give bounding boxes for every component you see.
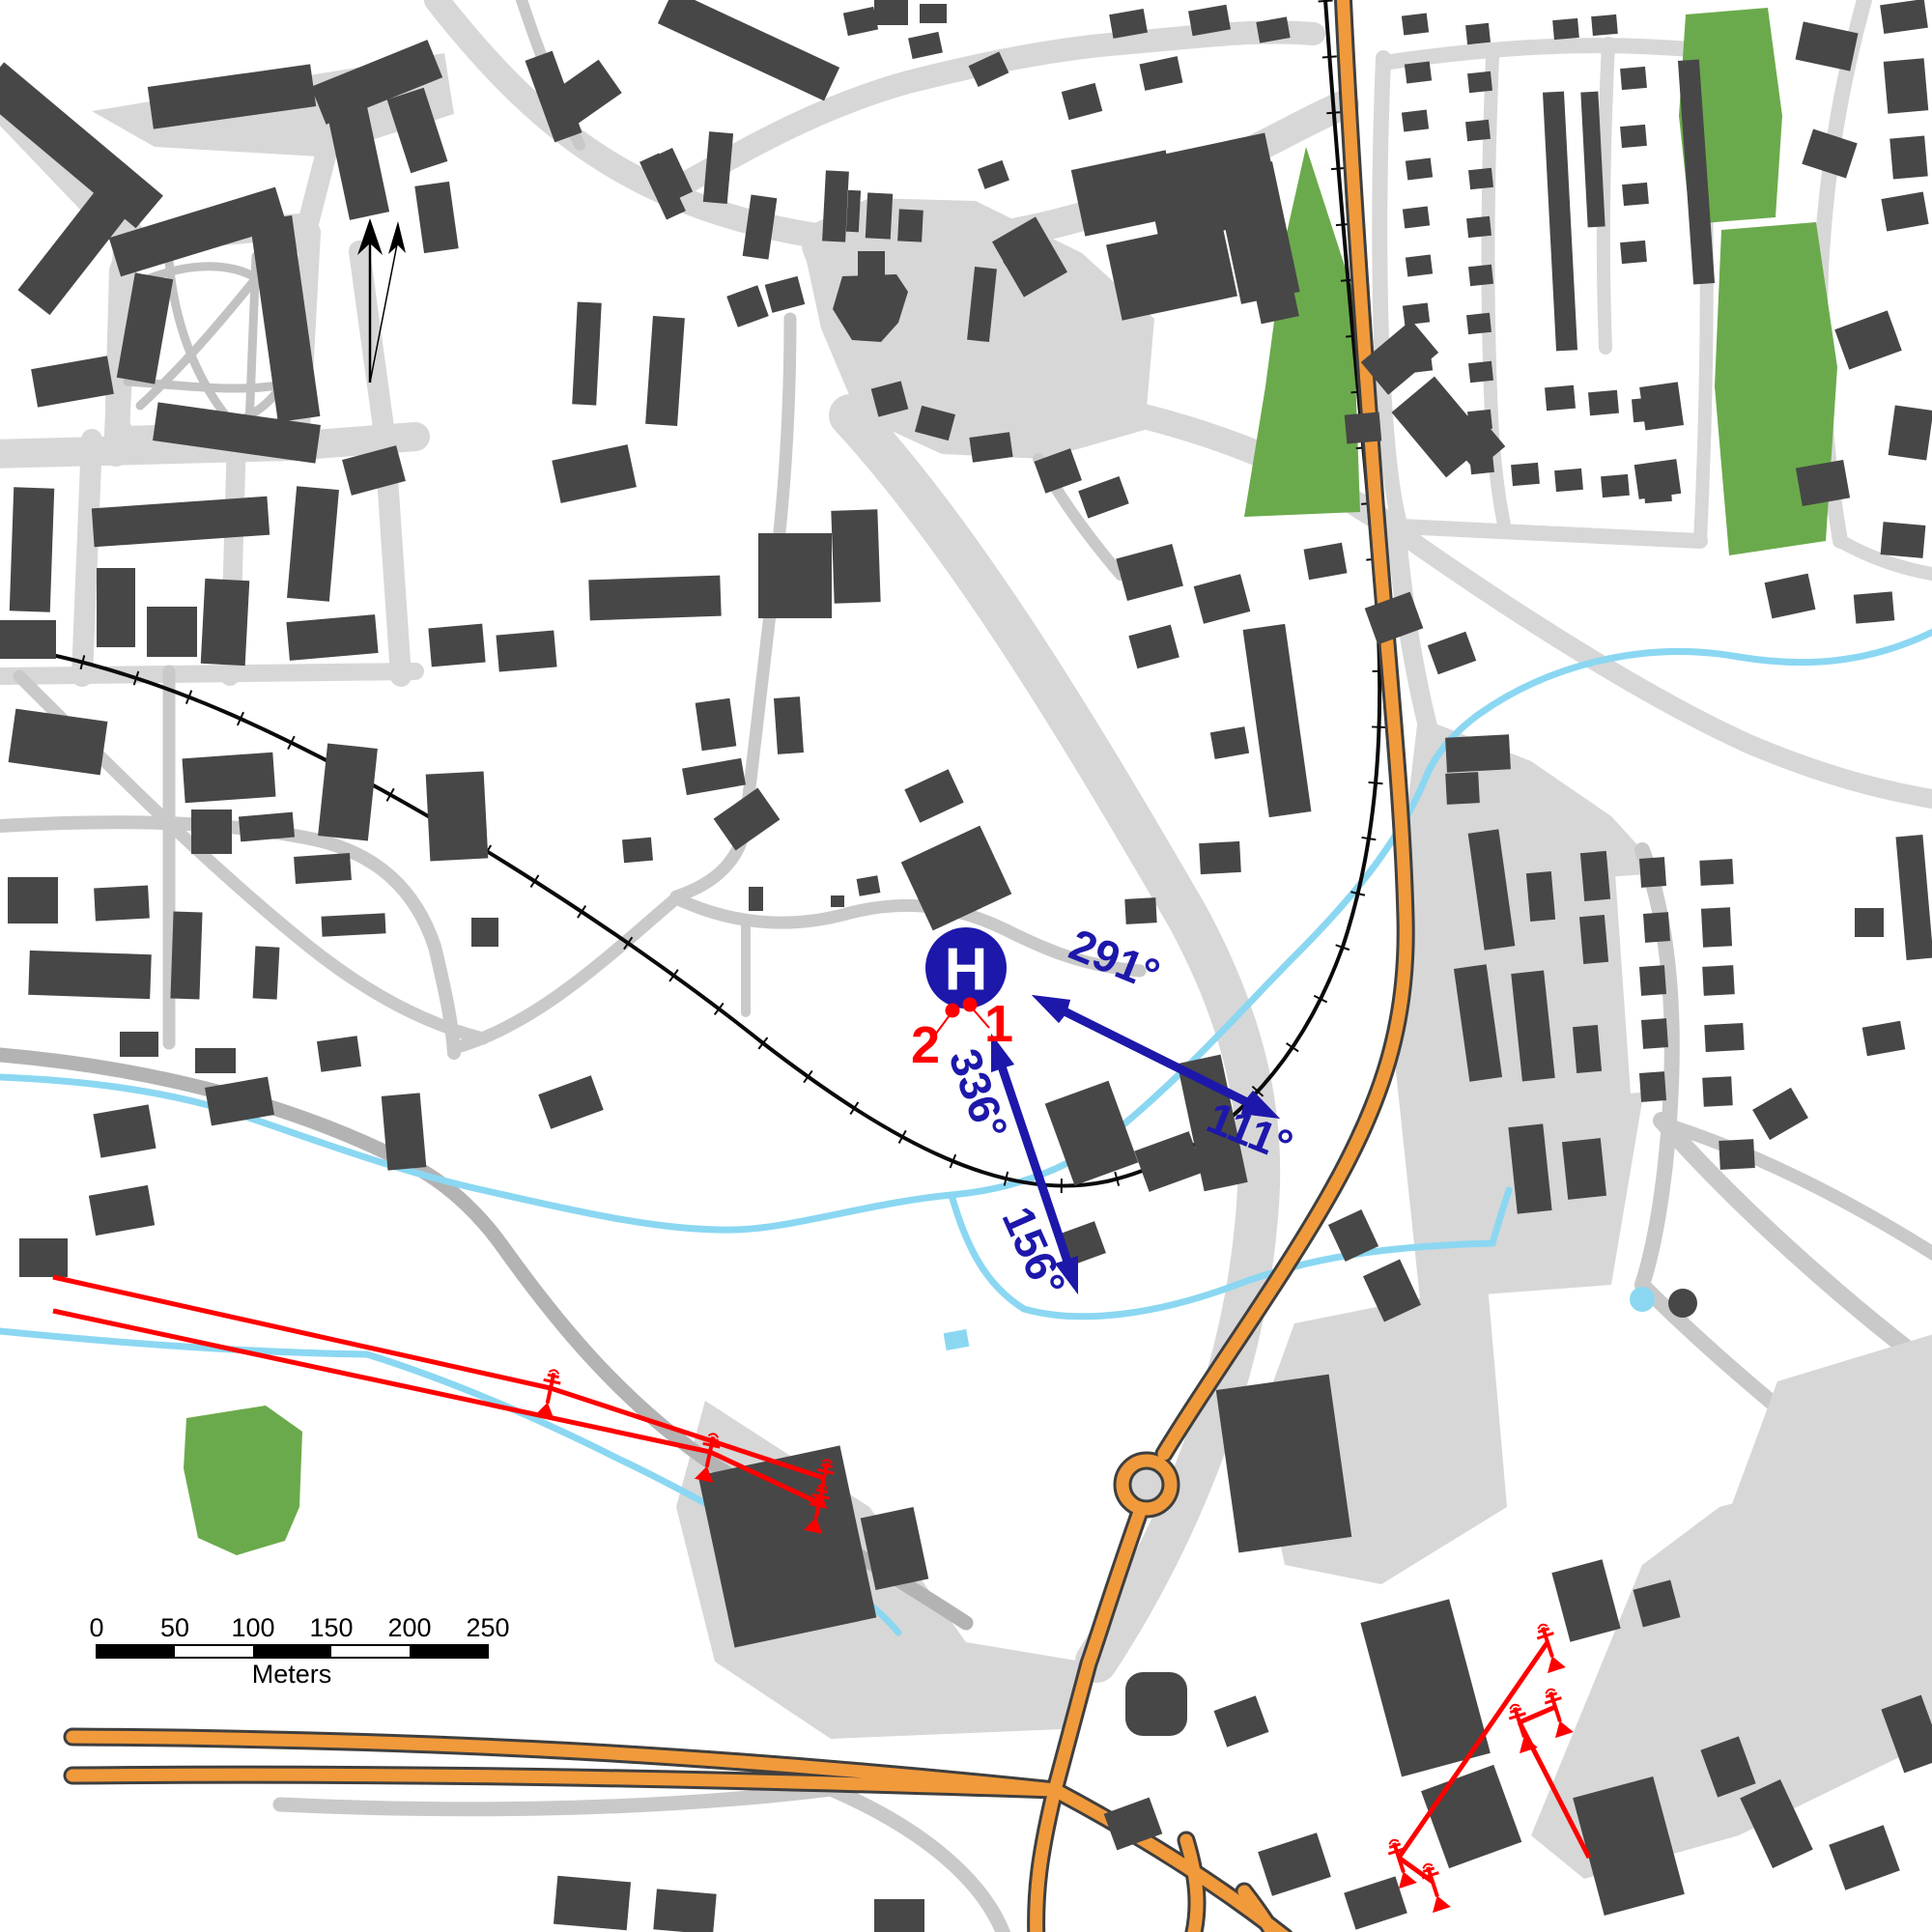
- scale-tick-50: 50: [160, 1613, 189, 1642]
- rounded-building: [1125, 1672, 1187, 1736]
- scale-tick-0: 0: [89, 1613, 103, 1642]
- point-marker-2[interactable]: [946, 1004, 959, 1017]
- point-marker-1[interactable]: [963, 998, 977, 1011]
- scale-unit-label: Meters: [252, 1660, 332, 1689]
- map-viewport: 291° 111° 336° 156° H 2 1 0 50 100 150 2…: [0, 0, 1932, 1932]
- point-label-2: 2: [911, 1016, 940, 1074]
- point-label-1: 1: [984, 995, 1013, 1053]
- scale-tick-100: 100: [231, 1613, 274, 1642]
- helipad-icon: H: [945, 937, 988, 1004]
- map-canvas[interactable]: 291° 111° 336° 156° H 2 1 0 50 100 150 2…: [0, 0, 1932, 1932]
- scale-tick-200: 200: [387, 1613, 431, 1642]
- scale-tick-250: 250: [466, 1613, 509, 1642]
- pond: [1630, 1287, 1655, 1312]
- scale-tick-150: 150: [309, 1613, 353, 1642]
